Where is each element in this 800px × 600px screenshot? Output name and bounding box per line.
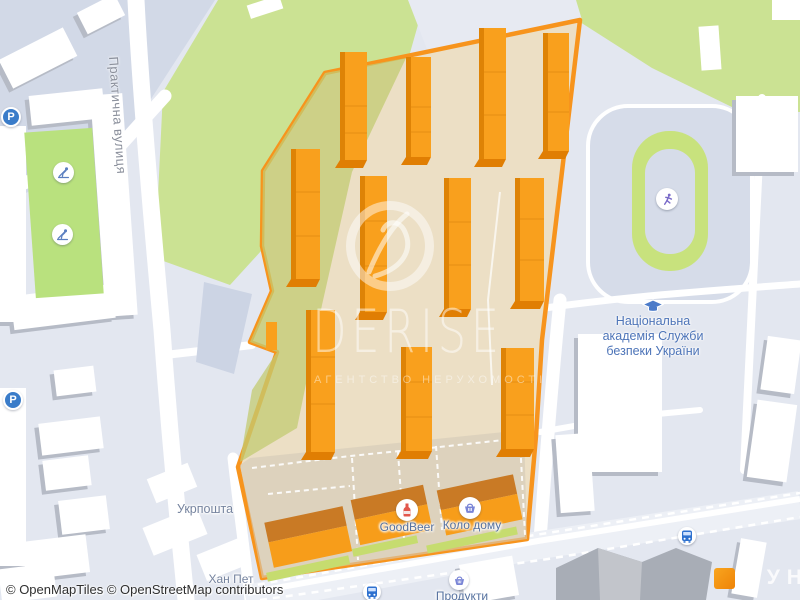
grocery-basket-icon[interactable] <box>459 497 481 519</box>
playground-icon[interactable] <box>53 162 74 183</box>
map-canvas[interactable]: Практична вулиця P P Національна академі… <box>0 0 800 600</box>
vendor-logo-icon <box>714 568 735 589</box>
parking-icon[interactable]: P <box>1 107 21 127</box>
vendor-logo[interactable]: ЛУН <box>714 566 800 590</box>
vendor-logo-text: ЛУН <box>745 566 800 590</box>
poi-label-ukrposhta[interactable]: Укрпошта <box>160 502 250 516</box>
poi-label-produkty[interactable]: Продукти <box>422 589 502 600</box>
grocery-basket-icon[interactable] <box>449 570 469 590</box>
bus-stop-icon[interactable] <box>678 527 696 545</box>
bus-stop-icon[interactable] <box>363 583 381 600</box>
beer-shop-icon[interactable] <box>396 499 418 521</box>
academy-label[interactable]: Національна академія Служби безпеки Укра… <box>585 314 721 359</box>
map-attribution[interactable]: © OpenMapTiles © OpenStreetMap contribut… <box>6 582 283 597</box>
parking-icon[interactable]: P <box>3 390 23 410</box>
running-track-icon[interactable] <box>656 188 678 210</box>
courtyard-green <box>24 128 103 298</box>
poi-label-kolo-domu[interactable]: Коло дому <box>427 518 517 532</box>
playground-icon[interactable] <box>52 224 73 245</box>
